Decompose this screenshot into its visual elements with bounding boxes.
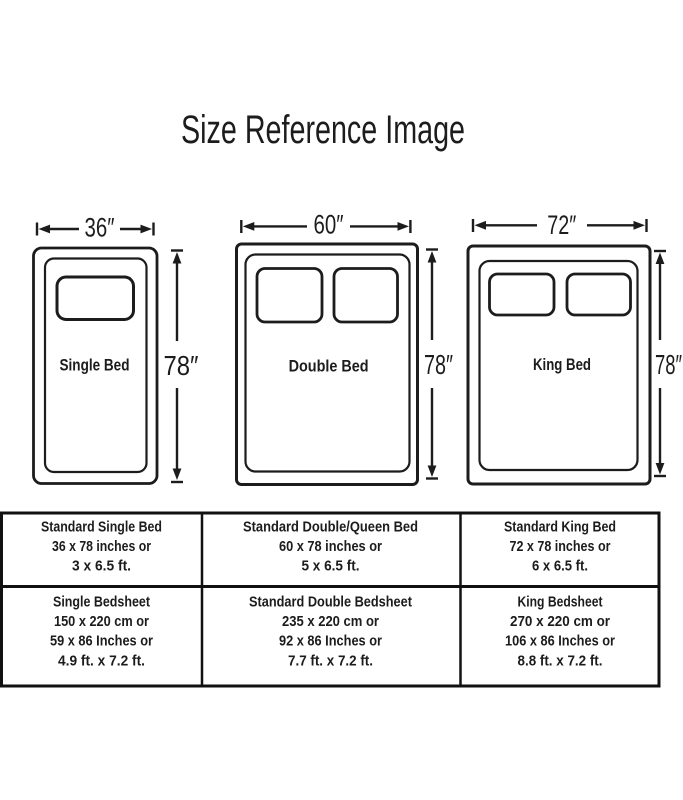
svg-text:78″: 78″ bbox=[424, 349, 453, 380]
svg-text:7.7 ft. x 7.2 ft.: 7.7 ft. x 7.2 ft. bbox=[288, 654, 373, 670]
svg-text:78″: 78″ bbox=[655, 349, 682, 380]
svg-text:Standard King Bed: Standard King Bed bbox=[504, 520, 616, 536]
svg-text:150 x 220 cm or: 150 x 220 cm or bbox=[54, 614, 149, 630]
svg-text:72 x 78 inches or: 72 x 78 inches or bbox=[510, 539, 611, 555]
svg-text:4.9 ft. x 7.2 ft.: 4.9 ft. x 7.2 ft. bbox=[58, 654, 145, 670]
svg-text:235 x 220 cm or: 235 x 220 cm or bbox=[282, 614, 379, 630]
svg-text:36″: 36″ bbox=[85, 213, 115, 243]
svg-text:59 x 86 Inches or: 59 x 86 Inches or bbox=[50, 634, 153, 650]
svg-text:106 x 86 Inches or: 106 x 86 Inches or bbox=[505, 634, 615, 650]
svg-text:270 x 220 cm or: 270 x 220 cm or bbox=[510, 614, 610, 630]
svg-text:Standard Double Bedsheet: Standard Double Bedsheet bbox=[249, 595, 412, 611]
svg-text:Single Bedsheet: Single Bedsheet bbox=[53, 595, 150, 611]
svg-text:Standard Single Bed: Standard Single Bed bbox=[41, 520, 162, 536]
svg-text:60″: 60″ bbox=[314, 210, 344, 240]
svg-text:King Bed: King Bed bbox=[533, 355, 591, 374]
svg-text:Single Bed: Single Bed bbox=[60, 356, 130, 375]
svg-text:6 x 6.5 ft.: 6 x 6.5 ft. bbox=[532, 559, 588, 575]
svg-text:3 x 6.5 ft.: 3 x 6.5 ft. bbox=[72, 559, 131, 575]
svg-text:Size Reference Image: Size Reference Image bbox=[181, 108, 465, 152]
svg-text:36 x 78 inches or: 36 x 78 inches or bbox=[52, 539, 151, 555]
svg-text:King Bedsheet: King Bedsheet bbox=[518, 595, 603, 611]
svg-text:8.8 ft. x 7.2 ft.: 8.8 ft. x 7.2 ft. bbox=[518, 654, 603, 670]
svg-text:60 x 78 inches or: 60 x 78 inches or bbox=[279, 539, 382, 555]
svg-text:78″: 78″ bbox=[164, 350, 199, 381]
svg-text:5 x 6.5 ft.: 5 x 6.5 ft. bbox=[302, 559, 360, 575]
svg-text:Standard Double/Queen Bed: Standard Double/Queen Bed bbox=[243, 520, 418, 536]
svg-text:92 x 86 Inches or: 92 x 86 Inches or bbox=[279, 634, 382, 650]
svg-text:Double Bed: Double Bed bbox=[289, 357, 369, 376]
svg-text:72″: 72″ bbox=[547, 210, 576, 240]
